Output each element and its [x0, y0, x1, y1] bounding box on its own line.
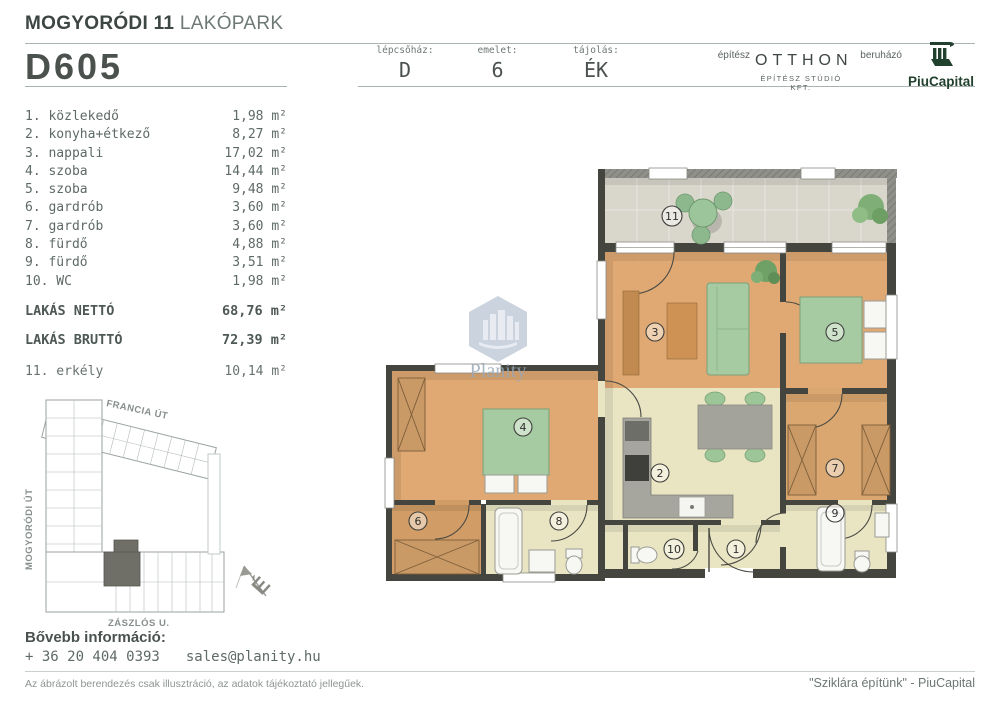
svg-text:11: 11: [665, 210, 679, 223]
room-row: 8. fürdő4,88 m²: [25, 236, 287, 254]
svg-text:1: 1: [733, 543, 740, 556]
balcony-row: 11. erkély10,14 m²: [25, 364, 287, 379]
footer-slogan: "Sziklára építünk" - PiuCapital: [809, 676, 975, 690]
total-net-row: LAKÁS NETTÓ68,76 m²: [25, 303, 287, 319]
svg-text:6: 6: [415, 515, 422, 528]
room-row: 9. fürdő3,51 m²: [25, 254, 287, 272]
svg-text:4: 4: [520, 421, 527, 434]
piucapital-column-icon: [924, 40, 958, 68]
architect-logo: OTTHON ÉPÍTÉSZ STÚDIÓ KFT.: [755, 52, 847, 92]
street-label-mogyorodi: MOGYORÓDI ÚT: [23, 489, 35, 570]
footer-rule: [25, 671, 975, 672]
field-staircase-label: lépcsőház:: [360, 45, 450, 56]
room-row: 1. közlekedő1,98 m²: [25, 108, 287, 126]
watermark-text: Planity: [450, 360, 546, 383]
svg-text:3: 3: [652, 326, 659, 339]
contact-heading: Bővebb információ:: [25, 629, 166, 646]
field-orientation-value: ÉK: [550, 58, 642, 82]
unit-id-underline: [25, 86, 287, 87]
project-title: MOGYORÓDI 11 LAKÓPARK: [25, 13, 283, 35]
compass: É: [236, 566, 275, 599]
project-title-bold: MOGYORÓDI 11: [25, 13, 174, 34]
site-connector: [208, 454, 220, 554]
room-row: 4. szoba14,44 m²: [25, 163, 287, 181]
svg-text:9: 9: [832, 507, 839, 520]
developer-logo: PiuCapital: [905, 40, 977, 89]
header-table-underline: [358, 86, 975, 87]
svg-text:5: 5: [832, 326, 839, 339]
field-staircase-value: D: [360, 58, 450, 82]
unit-id: D605: [25, 46, 123, 88]
architect-name: OTTHON: [755, 52, 847, 70]
architect-sub: ÉPÍTÉSZ STÚDIÓ KFT.: [755, 74, 847, 92]
field-orientation-label: tájolás:: [550, 45, 642, 56]
project-title-light: LAKÓPARK: [180, 13, 283, 34]
room-row: 10. WC1,98 m²: [25, 273, 287, 291]
site-plan: FRANCIA ÚT MOGYORÓDI ÚT ZÁSZLÓS U. É: [10, 392, 300, 632]
disclaimer-text: Az ábrázolt berendezés csak illusztráció…: [25, 678, 364, 690]
street-label-francia: FRANCIA ÚT: [105, 397, 169, 422]
architect-label: építész: [688, 50, 750, 61]
field-orientation: tájolás: ÉK: [550, 45, 642, 85]
datasheet-page: MOGYORÓDI 11 LAKÓPARK D605 lépcsőház: D …: [0, 0, 1000, 707]
contact-phone: + 36 20 404 0393: [25, 649, 160, 665]
svg-text:2: 2: [657, 467, 664, 480]
contact-row: + 36 20 404 0393sales@planity.hu: [25, 649, 347, 665]
room-row: 3. nappali17,02 m²: [25, 145, 287, 163]
field-floor-value: 6: [455, 58, 540, 82]
room-row: 5. szoba9,48 m²: [25, 181, 287, 199]
watermark: Planity: [450, 296, 546, 383]
field-floor: emelet: 6: [455, 45, 540, 85]
svg-text:7: 7: [832, 462, 839, 475]
developer-label: beruházó: [846, 50, 902, 61]
svg-text:10: 10: [667, 543, 681, 556]
field-floor-label: emelet:: [455, 45, 540, 56]
room-list: 1. közlekedő1,98 m² 2. konyha+étkező8,27…: [25, 108, 287, 291]
site-highlight-unit: [104, 540, 140, 586]
total-gross-row: LAKÁS BRUTTÓ72,39 m²: [25, 332, 287, 348]
watermark-hexagon-icon: [469, 296, 527, 362]
developer-name: PiuCapital: [905, 74, 977, 89]
contact-email[interactable]: sales@planity.hu: [186, 649, 321, 665]
field-staircase: lépcsőház: D: [360, 45, 450, 85]
header-top-rule: [25, 43, 975, 44]
svg-text:8: 8: [556, 515, 563, 528]
room-row: 6. gardrób3,60 m²: [25, 199, 287, 217]
street-label-zaszlos: ZÁSZLÓS U.: [108, 617, 169, 629]
room-row: 2. konyha+étkező8,27 m²: [25, 126, 287, 144]
room-row: 7. gardrób3,60 m²: [25, 218, 287, 236]
